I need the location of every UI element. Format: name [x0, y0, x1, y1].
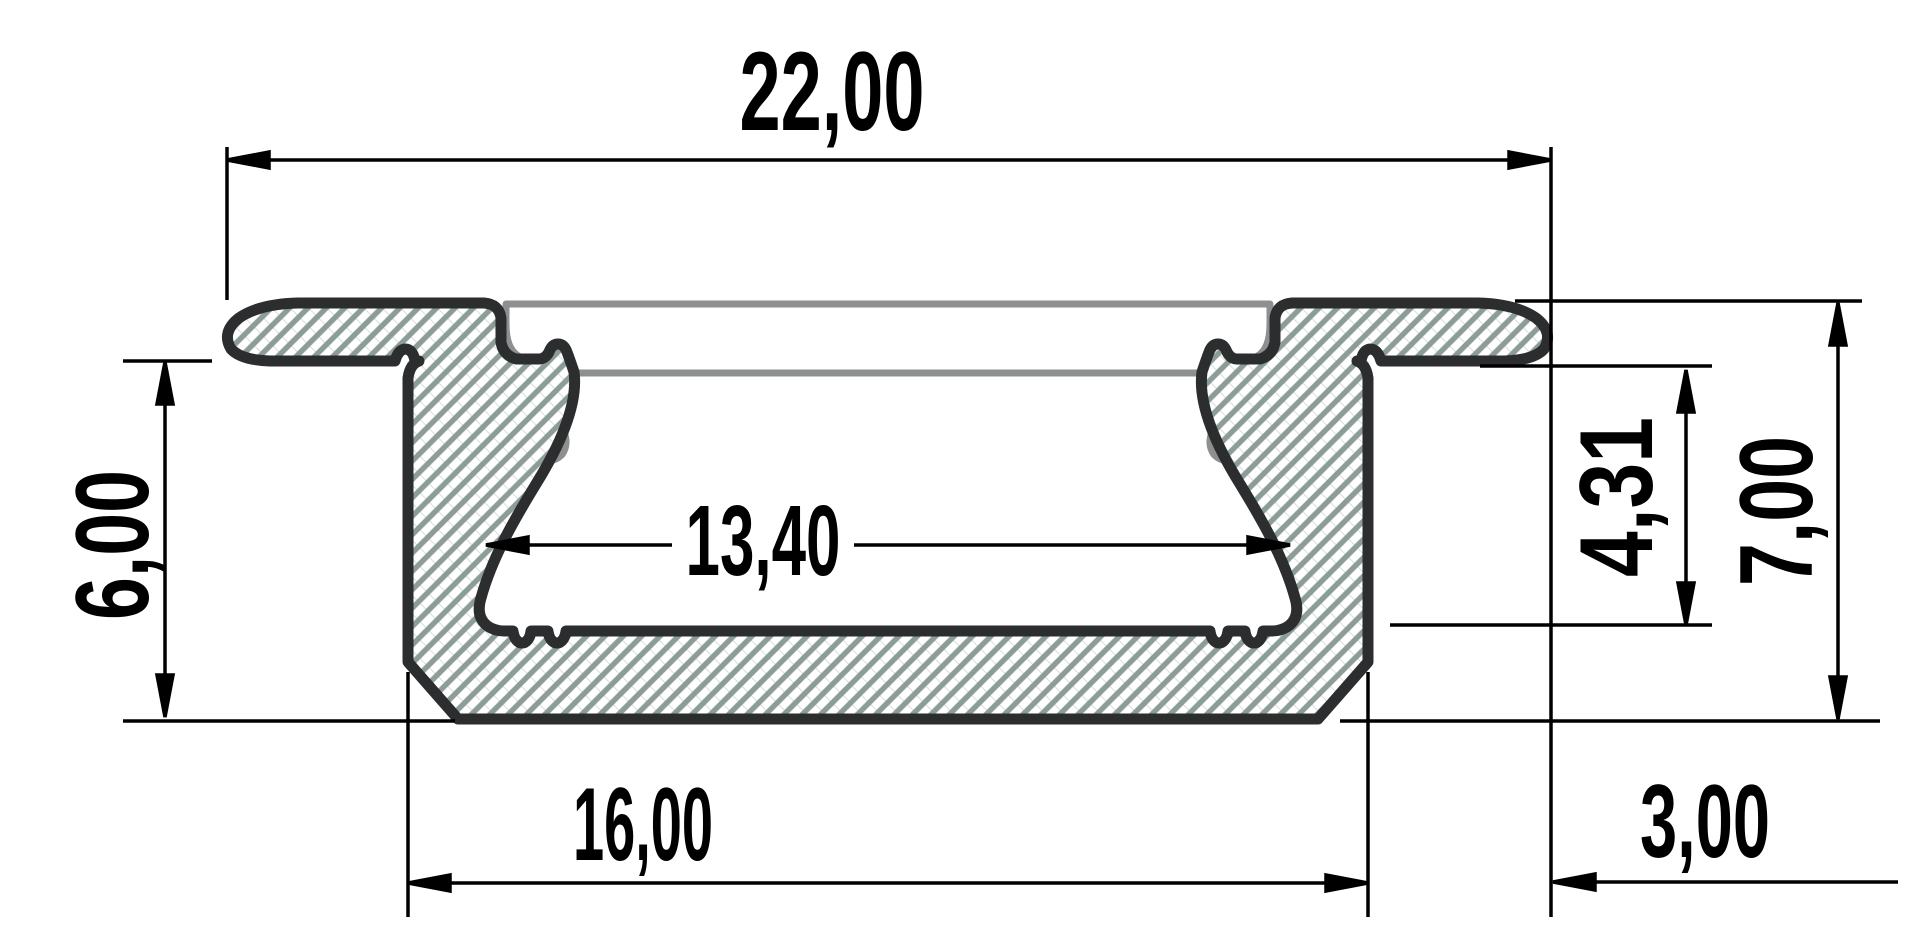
dimension-labels: 22,00 13,40 16,00 3,00 6,00 4,31 7,00	[55, 29, 1835, 883]
arrowhead-bottom	[1830, 677, 1846, 719]
technical-drawing-page: 22,00 13,40 16,00 3,00 6,00 4,31 7,00	[0, 0, 1920, 939]
label-overall-width: 22,00	[740, 29, 925, 154]
arrowhead-left	[227, 152, 269, 168]
arrowhead-left	[408, 875, 450, 891]
arrowhead-top	[157, 362, 173, 404]
arrowhead-top	[1830, 303, 1846, 345]
cover-cross-section	[506, 304, 1270, 458]
arrowhead-right	[1326, 875, 1368, 891]
arrowhead-bottom	[157, 675, 173, 717]
label-opening-width: 13,40	[686, 485, 841, 597]
profile-drawing-canvas: 22,00 13,40 16,00 3,00 6,00 4,31 7,00	[0, 0, 1920, 939]
label-body-depth: 6,00	[55, 470, 171, 620]
arrowhead-top	[1678, 370, 1694, 412]
arrowhead-right	[1509, 152, 1551, 168]
cover-plate	[506, 304, 1270, 373]
arrowhead-bottom	[1678, 583, 1694, 625]
label-cavity-depth: 4,31	[1559, 417, 1675, 577]
dim-opening-width	[486, 537, 1290, 553]
label-body-width: 16,00	[573, 767, 713, 883]
dim-overall-width	[227, 147, 1551, 300]
arrowhead-left	[1553, 874, 1595, 890]
label-overall-height: 7,00	[1719, 436, 1835, 586]
label-flange-overhang: 3,00	[1640, 764, 1770, 880]
